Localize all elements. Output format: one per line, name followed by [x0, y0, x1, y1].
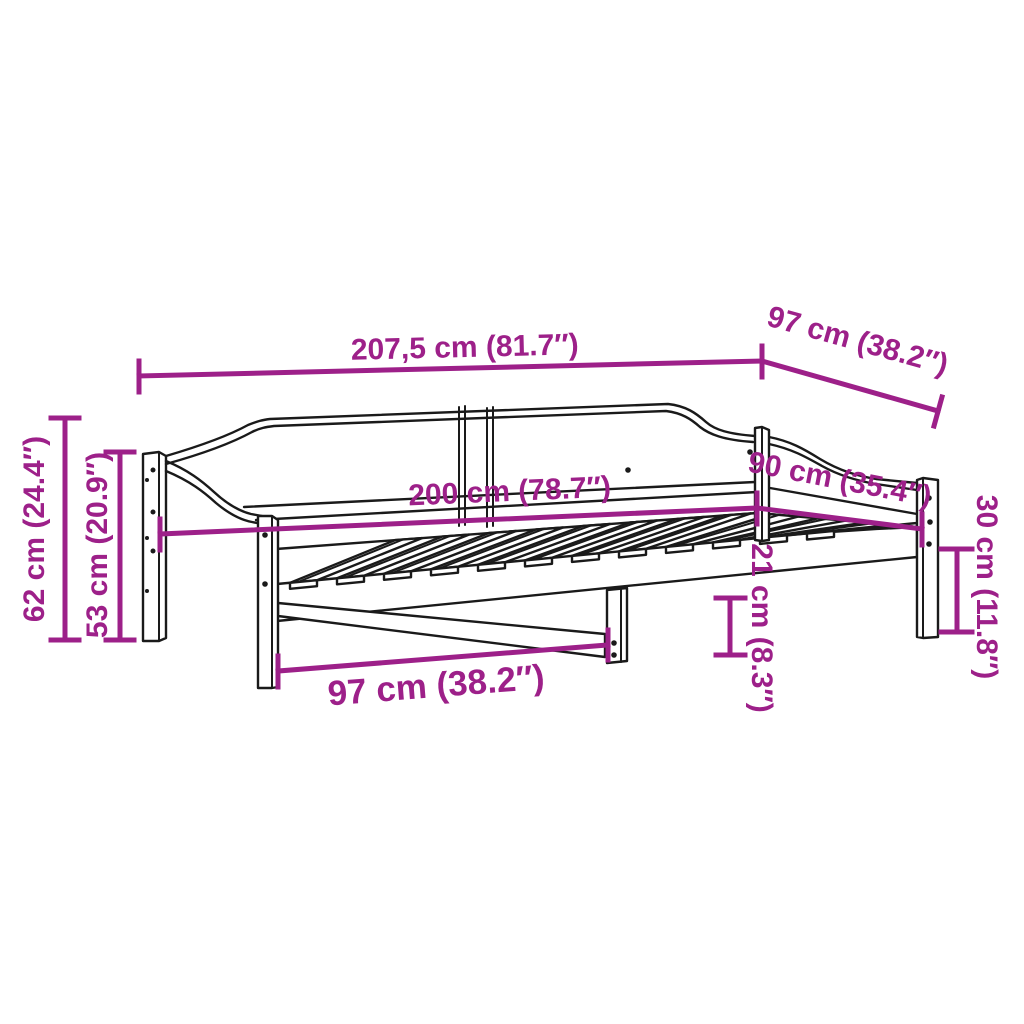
dimension-side-height: 30 cm (11.8″)	[941, 495, 1003, 679]
dimension-total-depth: 97 cm (38.2″)	[762, 300, 952, 426]
bed-left-post	[143, 452, 166, 641]
dimension-diagram-page: 207,5 cm (81.7″) 97 cm (38.2″) 62 cm (24…	[0, 0, 1024, 1024]
bed-front-left-leg	[258, 516, 278, 688]
dim-inner-length-label: 200 cm (78.7″)	[408, 471, 612, 513]
dim-backrest-height-label: 53 cm (20.9″)	[81, 452, 114, 638]
daybed-dimension-diagram: 207,5 cm (81.7″) 97 cm (38.2″) 62 cm (24…	[0, 0, 1024, 1024]
dimension-backrest-height: 53 cm (20.9″)	[81, 452, 134, 640]
dimension-back-height: 62 cm (24.4″)	[18, 418, 79, 640]
dim-side-height-label: 30 cm (11.8″)	[970, 495, 1003, 679]
dim-underbed-clearance-label: 21 cm (8.3″)	[745, 543, 778, 712]
bed-frame-drawing	[143, 404, 938, 688]
bed-armrest	[166, 461, 262, 524]
dimension-total-length: 207,5 cm (81.7″)	[139, 328, 762, 392]
dim-total-length-label: 207,5 cm (81.7″)	[350, 328, 579, 367]
dim-inner-width-label: 90 cm (35.4″)	[745, 446, 934, 514]
dim-back-height-label: 62 cm (24.4″)	[18, 436, 51, 622]
